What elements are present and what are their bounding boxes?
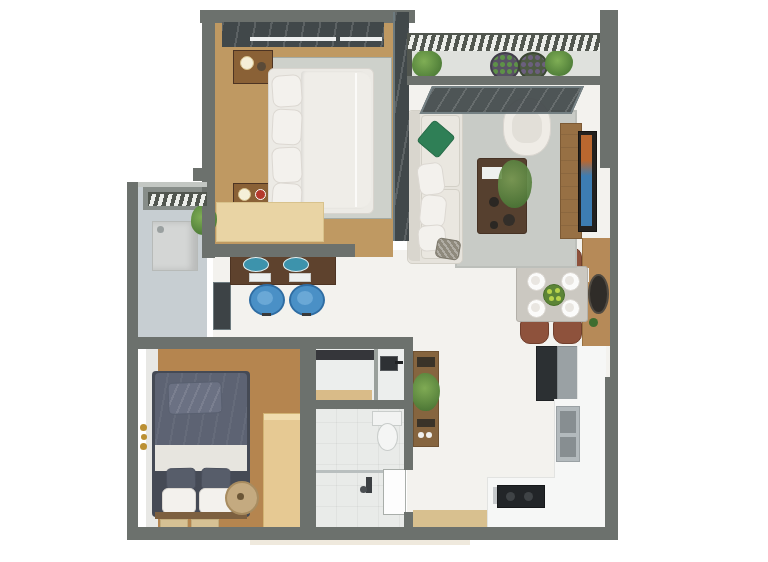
balcony-plant bbox=[412, 50, 442, 78]
white-pillow bbox=[162, 488, 196, 514]
wall-bedroom2-bathroom bbox=[300, 349, 316, 527]
bowl-icon bbox=[503, 214, 515, 226]
pillow bbox=[271, 108, 303, 146]
wall-hall-bottom bbox=[133, 337, 413, 349]
vanity-counter bbox=[316, 350, 374, 360]
cooktop-steel-edge bbox=[493, 487, 497, 504]
balcony-plant bbox=[545, 50, 573, 76]
nightstand-top bbox=[233, 50, 273, 84]
striped-throw-pillow bbox=[434, 237, 461, 261]
wall-bathroom-right-upper bbox=[404, 349, 413, 470]
shelf-bottle-icon bbox=[426, 432, 432, 438]
gold-wall-decor-icon bbox=[139, 424, 149, 452]
vanity-shelf bbox=[316, 390, 372, 400]
table-lamp-icon bbox=[238, 188, 251, 201]
wall-bathroom-right-lower bbox=[404, 512, 413, 527]
red-decor-icon bbox=[255, 189, 266, 200]
sofa bbox=[407, 110, 463, 264]
sink-bowl bbox=[559, 436, 577, 458]
basket-center bbox=[237, 493, 244, 500]
desk-window bbox=[213, 282, 231, 330]
burner-icon bbox=[506, 492, 515, 501]
tray-icon bbox=[257, 62, 266, 71]
plate bbox=[561, 299, 580, 318]
faucet-icon bbox=[395, 361, 403, 364]
pillow bbox=[271, 74, 303, 108]
shelf-bottle-icon bbox=[418, 432, 424, 438]
plate bbox=[561, 272, 580, 291]
niche-divider bbox=[374, 349, 378, 400]
shower-drain-icon bbox=[360, 486, 367, 493]
floorplan-canvas bbox=[0, 0, 768, 562]
duvet bbox=[301, 71, 371, 209]
tv-screen bbox=[578, 131, 597, 232]
table-lamp-icon bbox=[240, 56, 254, 70]
wall-bottom bbox=[127, 527, 618, 540]
kitchen-sink bbox=[556, 406, 580, 462]
bowl-icon bbox=[489, 197, 499, 207]
shelf-slot bbox=[417, 419, 435, 427]
tv-picture bbox=[581, 135, 592, 226]
utility-louver-screen bbox=[148, 192, 207, 206]
keyboard-icon bbox=[289, 273, 311, 282]
bedroom1-bed bbox=[268, 68, 374, 214]
white-throw-pillow bbox=[416, 161, 446, 196]
shower-handle-icon bbox=[366, 477, 372, 493]
living-room-glass-door bbox=[420, 86, 584, 114]
teal-bowl-icon bbox=[243, 257, 269, 272]
bedroom1-door-threshold bbox=[355, 244, 393, 257]
sink-bowl bbox=[559, 410, 577, 434]
duvet-seam bbox=[355, 73, 357, 207]
wall-bathroom-divider bbox=[316, 400, 404, 409]
washing-machine bbox=[152, 221, 198, 271]
wardrobe-top-edge bbox=[264, 414, 302, 420]
keyboard-icon bbox=[249, 273, 271, 282]
wall-stub bbox=[193, 168, 207, 181]
bedroom1-bench bbox=[216, 202, 324, 242]
floor-shadow bbox=[250, 540, 470, 545]
plate bbox=[527, 272, 546, 291]
cooktop bbox=[497, 485, 545, 508]
bowl-icon bbox=[490, 221, 498, 229]
wall-mirror bbox=[588, 274, 609, 314]
utility-top-edge bbox=[138, 182, 207, 187]
shower-partition bbox=[316, 470, 383, 473]
dining-table bbox=[516, 266, 588, 322]
teal-bowl-icon bbox=[283, 257, 309, 272]
shelf-slot bbox=[417, 357, 435, 367]
shelf-plant bbox=[412, 373, 440, 411]
round-basket bbox=[225, 481, 259, 515]
balcony-ledge bbox=[407, 76, 600, 85]
kitchen-counter-top bbox=[577, 346, 606, 399]
bedroom2-top-pillow bbox=[167, 381, 222, 415]
dining-chair bbox=[553, 320, 582, 344]
sideboard-plant-icon bbox=[589, 318, 598, 327]
white-throw-pillow bbox=[418, 194, 447, 229]
wall-bedroom1-bottom bbox=[207, 244, 355, 257]
coffee-table-plant bbox=[498, 160, 532, 208]
armchair-cushion bbox=[512, 111, 542, 143]
fridge-top bbox=[557, 346, 579, 401]
plate bbox=[527, 299, 546, 318]
chair-base bbox=[302, 313, 311, 316]
salad-centerpiece bbox=[543, 284, 565, 306]
bathroom-door bbox=[383, 469, 406, 515]
office-chair bbox=[289, 284, 325, 316]
wall-right-middle bbox=[610, 168, 618, 378]
washer-dial-icon bbox=[157, 226, 164, 233]
balcony-railing bbox=[407, 33, 600, 51]
bedroom1-window bbox=[222, 22, 384, 47]
balcony-railing-post bbox=[407, 49, 412, 76]
office-chair bbox=[249, 284, 285, 316]
wardrobe bbox=[263, 413, 305, 536]
hall-wood-threshold bbox=[413, 510, 492, 527]
window-frame bbox=[250, 37, 336, 41]
wall-bedroom1-left bbox=[202, 10, 215, 258]
wall-right-upper bbox=[600, 10, 618, 168]
toilet-bowl bbox=[377, 423, 398, 451]
dining-chair bbox=[520, 320, 549, 344]
wall-left bbox=[127, 182, 138, 540]
wall-right-lower bbox=[605, 377, 618, 540]
chair-seat bbox=[297, 291, 313, 305]
chair-base bbox=[262, 313, 271, 316]
pillow bbox=[271, 146, 303, 184]
burner-icon bbox=[524, 492, 533, 501]
chair-seat bbox=[257, 291, 273, 305]
fridge bbox=[536, 346, 559, 401]
window-frame bbox=[340, 37, 382, 41]
bedroom2-sheet bbox=[155, 445, 247, 471]
